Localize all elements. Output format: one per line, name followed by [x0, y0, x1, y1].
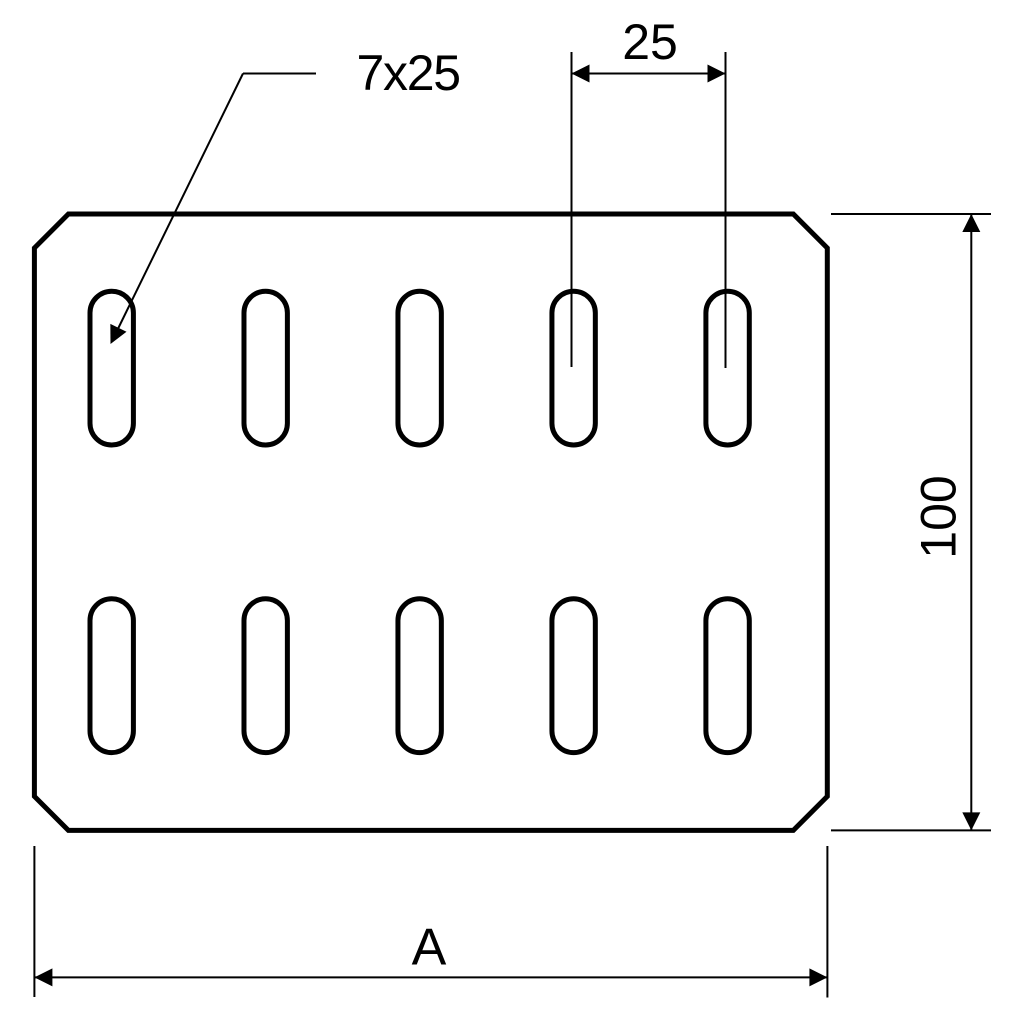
svg-text:A: A: [412, 919, 447, 977]
svg-text:7x25: 7x25: [357, 45, 460, 101]
svg-text:25: 25: [622, 14, 678, 70]
svg-text:100: 100: [911, 475, 967, 558]
